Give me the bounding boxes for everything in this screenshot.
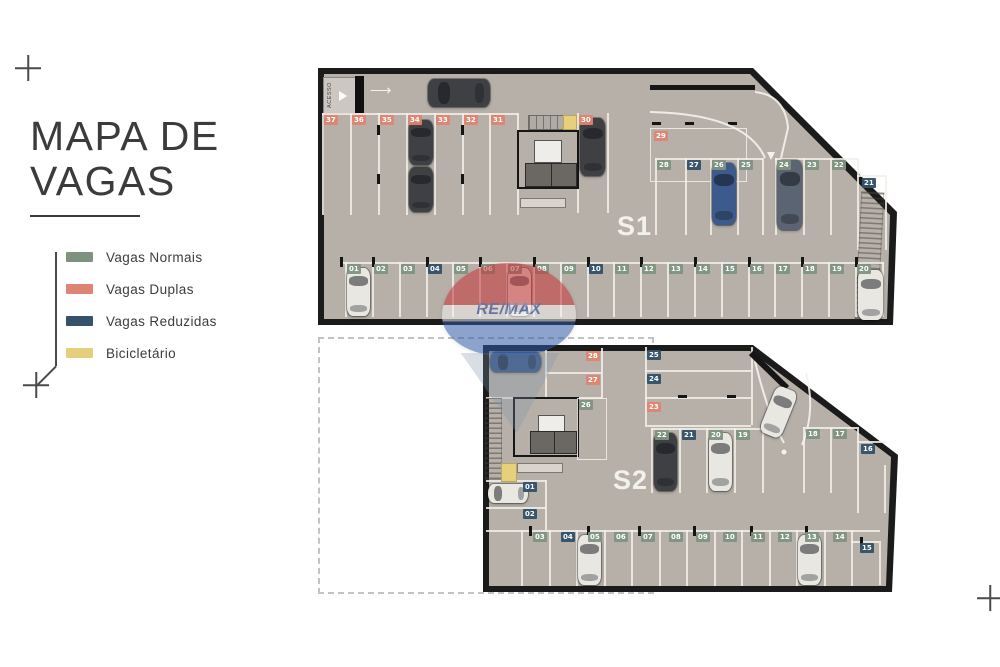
spot-s2-20: 20 [709,430,723,440]
spot-s2-06: 06 [614,532,628,542]
spot-s1-14: 14 [696,264,710,274]
spot-s1-01: 01 [347,264,361,274]
legend-swatch-reduzida [66,316,93,326]
spot-s2-04: 04 [561,532,575,542]
spot-s1-13: 13 [669,264,683,274]
car-spot01-s1 [347,268,370,316]
car-spot05-s2 [578,535,601,585]
legend-item-reduzida: Vagas Reduzidas [66,316,217,326]
spot-s2-17: 17 [833,429,847,439]
spot-s2-15: 15 [860,543,874,553]
lane-direction-arrow-icon: ⟶ [370,81,392,99]
legend-connector-line [55,252,57,366]
spot-s2-18: 18 [806,429,820,439]
spot-s2-07: 07 [641,532,655,542]
crop-mark-bottom-right [977,585,1000,611]
spot-s1-20: 20 [857,264,871,274]
spot-s2-27: 27 [586,375,600,385]
spot-s2-11: 11 [751,532,765,542]
spot-s1-28: 28 [657,160,671,170]
car-spot13-s2 [798,535,821,585]
legend-swatch-dupla [66,284,93,294]
s2-ramp-curves [483,345,898,592]
spot-s2-14: 14 [833,532,847,542]
spot-s1-06: 06 [481,264,495,274]
crop-mark-top-left [15,55,41,81]
title-underline [30,215,140,217]
spot-s2-13: 13 [805,532,819,542]
spot-s1-21: 21 [862,178,876,188]
car-spot01-s2 [488,484,528,503]
legend-label-bike: Bicicletário [106,346,176,361]
spot-s1-09: 09 [562,264,576,274]
spot-s2-24: 24 [647,374,661,384]
spot-s1-27: 27 [687,160,701,170]
spot-s2-26: 26 [579,400,593,410]
spot-s1-25: 25 [739,160,753,170]
spot-s1-15: 15 [723,264,737,274]
floorplan-s1: ACESSO ⟶ [318,68,897,325]
spot-s1-10: 10 [589,264,603,274]
floor-label-s2: S2 [613,465,648,496]
page-title: MAPA DE VAGAS [30,114,220,204]
legend-item-dupla: Vagas Duplas [66,284,217,294]
spot-s1-19: 19 [830,264,844,274]
legend-swatch-bike [66,348,93,358]
spot-s1-36: 36 [352,115,366,125]
floorplan-s2: 28 27 26 01 02 25 24 23 22 21 20 19 18 1… [483,345,898,592]
legend: Vagas Normais Vagas Duplas Vagas Reduzid… [66,252,217,380]
car-spot24 [777,160,802,230]
car-spot20-s2 [709,433,732,491]
s1-ramp-curves [318,68,897,325]
legend-swatch-normal [66,252,93,262]
spot-s2-05: 05 [588,532,602,542]
car-top-lane [428,79,490,107]
spot-s2-02: 02 [523,509,537,519]
spot-s1-17: 17 [776,264,790,274]
legend-label-normal: Vagas Normais [106,250,202,265]
spot-s1-30: 30 [579,115,593,125]
car-spot07-s1 [508,268,531,316]
spot-s2-08: 08 [669,532,683,542]
spot-s1-35: 35 [380,115,394,125]
spot-s1-23: 23 [805,160,819,170]
spot-s2-23: 23 [647,402,661,412]
spot-s1-11: 11 [615,264,629,274]
spot-s2-16: 16 [861,444,875,454]
spot-s1-05: 05 [454,264,468,274]
spot-s1-31: 31 [491,115,505,125]
spot-s1-08: 08 [535,264,549,274]
spot-s2-25: 25 [647,350,661,360]
car-spot34-front [409,120,433,165]
car-spot34-rear [409,167,433,212]
parking-map-page: MAPA DE VAGAS Vagas Normais Vagas Duplas… [0,0,1000,667]
spot-s2-22: 22 [655,430,669,440]
spot-s2-10: 10 [723,532,737,542]
spot-s1-29: 29 [654,131,668,141]
spot-s2-12: 12 [778,532,792,542]
spot-s2-03: 03 [533,532,547,542]
car-spot30 [580,118,605,176]
spot-s2-28: 28 [586,351,600,361]
legend-item-bike: Bicicletário [66,348,217,358]
spot-s1-26: 26 [712,160,726,170]
spot-s2-19: 19 [736,430,750,440]
spot-s1-24: 24 [777,160,791,170]
car-s2-topleft [490,352,541,372]
spot-s1-18: 18 [803,264,817,274]
page-title-line2: VAGAS [30,159,220,204]
spot-s2-01: 01 [523,482,537,492]
spot-s1-34: 34 [408,115,422,125]
spot-s1-04: 04 [428,264,442,274]
spot-s1-37: 37 [324,115,338,125]
spot-s1-07: 07 [508,264,522,274]
spot-s2-09: 09 [696,532,710,542]
spot-s1-03: 03 [401,264,415,274]
legend-item-normal: Vagas Normais [66,252,217,262]
spot-s1-02: 02 [374,264,388,274]
legend-label-dupla: Vagas Duplas [106,282,194,297]
car-spot26 [712,163,736,225]
spot-s1-12: 12 [642,264,656,274]
spot-s1-22: 22 [832,160,846,170]
spot-s2-21: 21 [682,430,696,440]
page-title-line1: MAPA DE [30,114,220,159]
spot-s1-32: 32 [464,115,478,125]
spot-s1-16: 16 [750,264,764,274]
car-spot20-s1 [858,270,883,320]
floor-label-s1: S1 [617,211,652,242]
legend-label-reduzida: Vagas Reduzidas [106,314,217,329]
spot-s1-33: 33 [436,115,450,125]
car-spot22-s2 [654,433,677,491]
